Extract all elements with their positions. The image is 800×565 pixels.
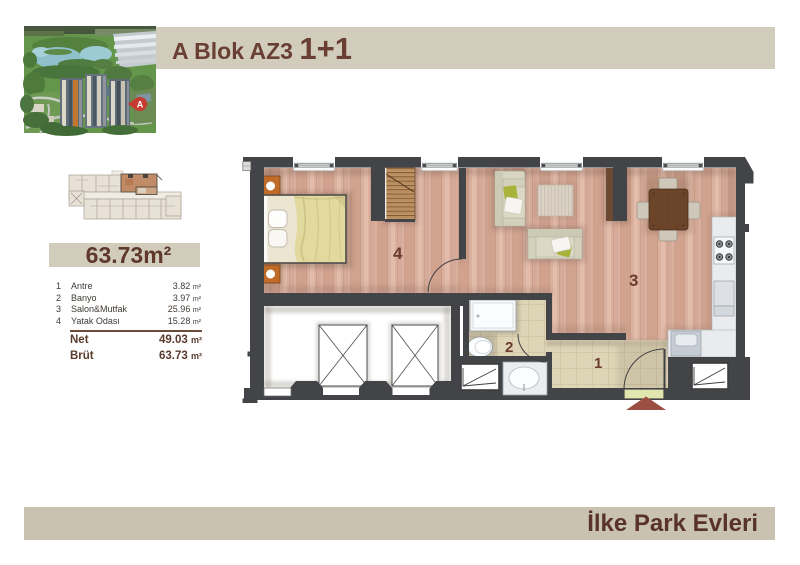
svg-text:2: 2: [505, 339, 513, 356]
svg-text:A: A: [137, 100, 144, 110]
svg-text:3: 3: [629, 271, 638, 290]
svg-text:4: 4: [393, 244, 403, 263]
svg-text:1: 1: [594, 355, 602, 372]
